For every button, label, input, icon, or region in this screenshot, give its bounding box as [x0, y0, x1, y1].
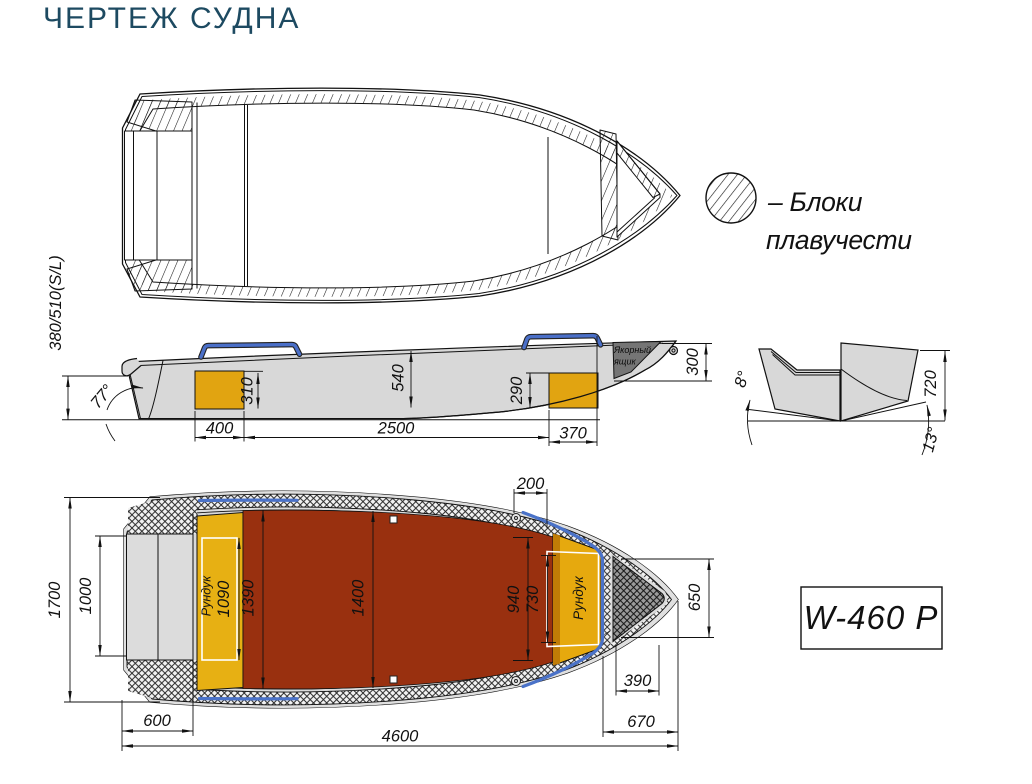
svg-text:1400: 1400 — [350, 579, 368, 617]
svg-text:380/510(S/L): 380/510(S/L) — [47, 255, 65, 350]
svg-text:ящик: ящик — [613, 357, 636, 367]
svg-text:400: 400 — [206, 420, 234, 438]
svg-text:Рундук: Рундук — [571, 576, 586, 620]
svg-text:200: 200 — [516, 475, 545, 493]
svg-text:2500: 2500 — [377, 420, 416, 438]
svg-text:1700: 1700 — [46, 581, 64, 619]
svg-text:670: 670 — [627, 713, 655, 731]
svg-text:600: 600 — [143, 712, 171, 730]
svg-text:плавучести: плавучести — [766, 225, 912, 255]
svg-text:290: 290 — [508, 376, 526, 405]
svg-text:W-460 P: W-460 P — [804, 599, 939, 636]
svg-text:8°: 8° — [731, 369, 753, 390]
svg-text:13°: 13° — [919, 425, 943, 454]
svg-text:77°: 77° — [87, 381, 117, 412]
svg-text:300: 300 — [684, 347, 702, 375]
svg-text:– Блоки: – Блоки — [767, 187, 863, 217]
svg-text:720: 720 — [922, 369, 940, 397]
svg-text:Якорный: Якорный — [613, 345, 651, 355]
svg-text:1090: 1090 — [215, 580, 233, 618]
svg-text:390: 390 — [624, 672, 652, 690]
svg-text:Рундук: Рундук — [200, 575, 214, 616]
svg-text:940: 940 — [505, 585, 523, 613]
svg-text:1390: 1390 — [240, 579, 258, 617]
svg-text:370: 370 — [559, 425, 587, 443]
svg-text:310: 310 — [239, 376, 257, 404]
svg-text:650: 650 — [686, 583, 704, 611]
svg-text:730: 730 — [524, 585, 542, 613]
svg-text:540: 540 — [390, 363, 408, 391]
svg-text:1000: 1000 — [77, 577, 95, 615]
svg-text:4600: 4600 — [382, 728, 420, 746]
